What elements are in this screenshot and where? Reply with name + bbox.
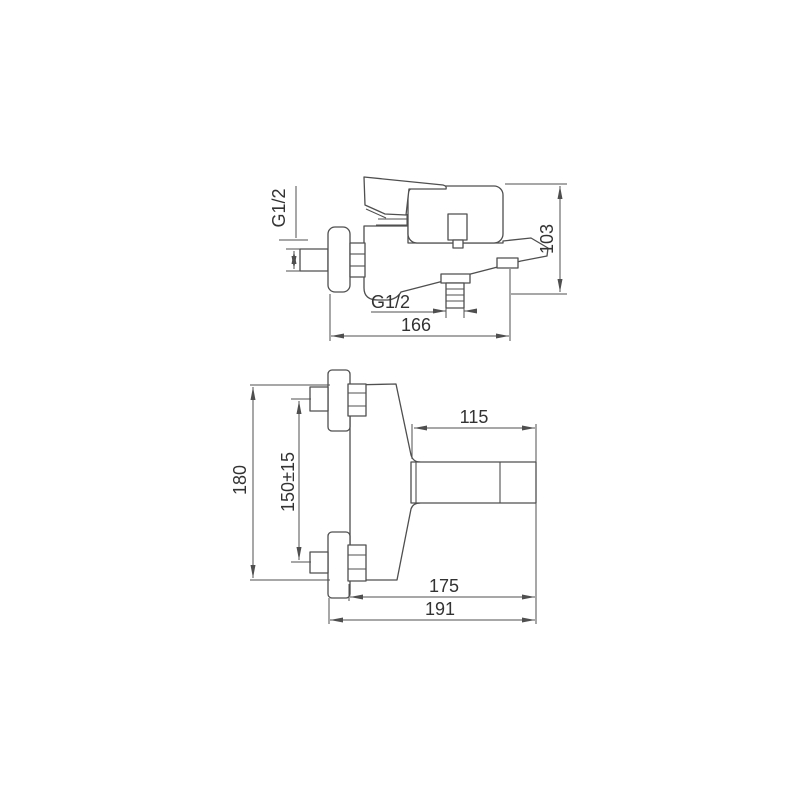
height-dim-label: 103: [537, 224, 557, 254]
plan-view: 180 150±15 115 175 191: [230, 370, 536, 624]
lower-hex-nut: [348, 545, 366, 581]
diverter-knob: [448, 214, 467, 240]
inlet-spacing-dimension: 150±15: [278, 399, 311, 562]
overall-depth-dim-label: 191: [425, 599, 455, 619]
wall-flange: [328, 227, 350, 292]
lower-wall-flange: [328, 532, 350, 598]
inlet-spacing-dim-label: 150±15: [278, 452, 298, 512]
overall-depth-dimension: 191: [329, 598, 535, 624]
reach-dim-label: 166: [401, 315, 431, 335]
drawing-svg: G1/2 103 G1/2 166: [0, 0, 800, 800]
inlet-pipe: [300, 249, 328, 271]
upper-hex-nut: [348, 384, 366, 416]
diverter-stem: [453, 240, 463, 248]
height-dimension: 103: [505, 184, 567, 294]
lower-inlet-fitting: [310, 552, 328, 573]
outlet-thread-label: G1/2: [371, 292, 410, 312]
spout: [411, 462, 536, 503]
overall-height-dim-label: 180: [230, 465, 250, 495]
spout-length-dim-label: 115: [460, 407, 489, 427]
upper-wall-flange: [328, 370, 350, 431]
shower-outlet-flange: [441, 274, 470, 283]
upper-inlet-fitting: [310, 387, 328, 411]
inlet-thread-label: G1/2: [269, 188, 289, 227]
hex-nut: [350, 243, 365, 277]
side-view: G1/2 103 G1/2 166: [269, 177, 567, 341]
body-depth-dim-label: 175: [429, 576, 459, 596]
faucet-technical-drawing: G1/2 103 G1/2 166: [0, 0, 800, 800]
spout-outlet-block: [497, 258, 518, 268]
